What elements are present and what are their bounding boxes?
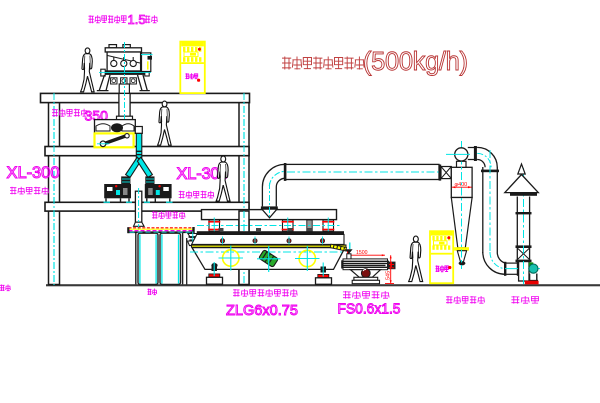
svg-text:ZLG6x0.75: ZLG6x0.75 xyxy=(226,302,298,319)
svg-text:545: 545 xyxy=(386,271,392,280)
svg-text:(500kg/h): (500kg/h) xyxy=(363,48,468,76)
svg-text:FS0.6x1.5: FS0.6x1.5 xyxy=(338,301,401,318)
svg-text:φ400: φ400 xyxy=(455,182,468,188)
svg-text:XL-300: XL-300 xyxy=(7,164,60,182)
svg-text:1500: 1500 xyxy=(356,250,368,256)
svg-text:1.5: 1.5 xyxy=(128,12,146,27)
